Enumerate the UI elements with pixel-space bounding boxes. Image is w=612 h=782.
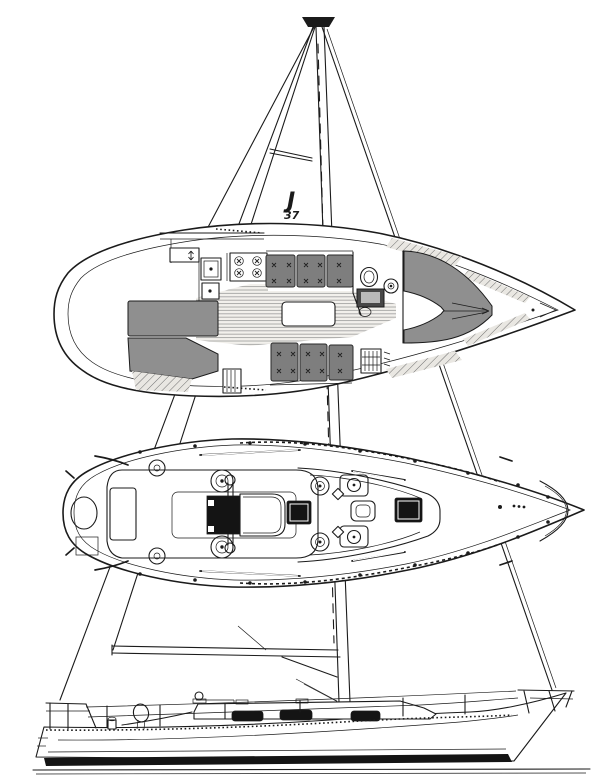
companionway-hatch bbox=[207, 496, 240, 534]
helm-seat bbox=[110, 488, 136, 540]
j37-sail-logo: J 37 bbox=[283, 189, 300, 222]
cabin-window bbox=[280, 710, 312, 720]
saloon-table bbox=[282, 302, 335, 326]
logo-number: 37 bbox=[284, 209, 300, 222]
profile-view bbox=[33, 690, 590, 774]
deck-plan bbox=[63, 439, 584, 587]
stove bbox=[227, 253, 267, 281]
drawing-canvas: J 37 bbox=[0, 0, 612, 782]
cabin-window bbox=[232, 711, 263, 721]
mainsheet bbox=[238, 626, 266, 650]
stem-fitting-dot bbox=[532, 309, 535, 312]
interior-accommodation-plan bbox=[54, 224, 575, 397]
spreader bbox=[270, 149, 312, 161]
deck-hull-outline bbox=[63, 439, 584, 587]
fore-hatch bbox=[395, 498, 422, 522]
bow-cleat bbox=[500, 457, 512, 461]
upper-shroud bbox=[206, 27, 314, 231]
profile-wheel bbox=[132, 703, 150, 729]
halyard-winch-port bbox=[340, 526, 368, 547]
cabin-window bbox=[351, 711, 380, 721]
masthead-fitting bbox=[302, 17, 335, 27]
mast-collar bbox=[351, 501, 375, 521]
sliding-hatch bbox=[240, 494, 285, 536]
port-settee bbox=[270, 343, 353, 385]
waterline-lower bbox=[36, 773, 586, 774]
bow-cleat bbox=[500, 561, 512, 565]
waterline bbox=[33, 769, 590, 770]
j37-line-drawing: J 37 bbox=[0, 0, 612, 782]
lower-shrouds bbox=[296, 679, 338, 702]
profile-cabin-trunk bbox=[194, 701, 436, 719]
saloon-hatch bbox=[287, 501, 311, 524]
starboard-settee bbox=[266, 251, 353, 287]
boom bbox=[112, 626, 340, 677]
boom-vang bbox=[282, 657, 337, 677]
companionway-ladder bbox=[223, 369, 241, 393]
